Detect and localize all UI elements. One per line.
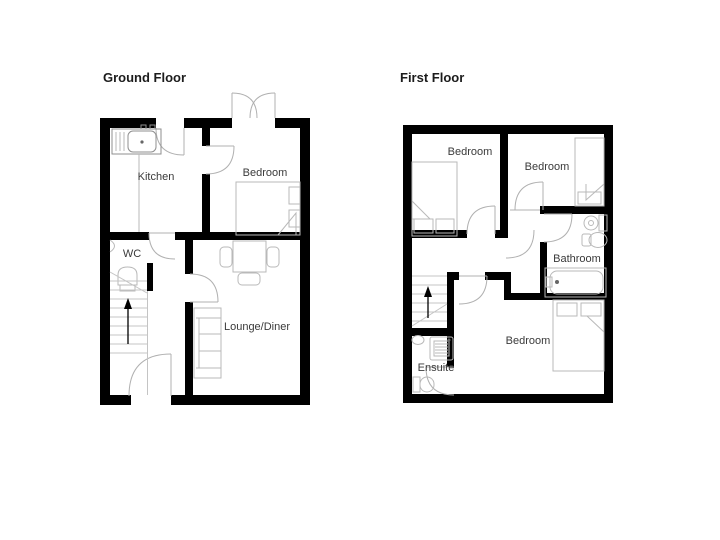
bathtub xyxy=(545,268,606,297)
rear-door xyxy=(156,128,184,155)
stairs-up-arrow xyxy=(124,298,132,344)
ensuite-toilet xyxy=(413,377,434,392)
staircase xyxy=(110,272,148,395)
floorplan-page: Ground Floor xyxy=(0,0,720,540)
bed-rear xyxy=(553,300,604,371)
first-floor-title: First Floor xyxy=(400,70,464,85)
bedroom3-door xyxy=(459,276,487,304)
bathroom-basin xyxy=(582,233,607,248)
lounge-door xyxy=(190,274,218,302)
room-label-ensuite: Ensuite xyxy=(418,362,455,374)
bedroom2-door xyxy=(510,182,543,210)
first-floor-fixtures xyxy=(412,138,607,392)
room-label-bedroom-1: Bedroom xyxy=(448,146,493,158)
ground-floor-fixtures xyxy=(110,125,300,395)
double-bed xyxy=(236,182,300,235)
sofa xyxy=(194,308,221,378)
dining-table xyxy=(220,241,279,285)
landing-door xyxy=(506,230,534,258)
bed-front-right xyxy=(575,138,604,206)
first-floor-plan: First Floor xyxy=(400,70,613,403)
ground-floor-title: Ground Floor xyxy=(103,70,186,85)
staircase-first xyxy=(412,276,447,326)
wc-basin xyxy=(110,240,115,252)
bedroom-door xyxy=(206,146,234,174)
floorplan-canvas: Ground Floor xyxy=(0,0,720,540)
room-label-bedroom-gf: Bedroom xyxy=(243,167,288,179)
stairs-up-arrow-first xyxy=(424,286,432,318)
ground-floor-plan: Ground Floor xyxy=(100,70,310,405)
room-label-bedroom-2: Bedroom xyxy=(525,161,570,173)
bathroom-door xyxy=(544,214,572,242)
front-door xyxy=(129,354,171,396)
wc-door xyxy=(149,233,175,259)
room-label-lounge-diner: Lounge/Diner xyxy=(224,321,290,333)
french-doors xyxy=(232,93,275,118)
wc-toilet xyxy=(118,267,137,291)
room-label-bathroom: Bathroom xyxy=(553,253,601,265)
room-label-kitchen: Kitchen xyxy=(138,171,175,183)
bed-front-left xyxy=(412,162,457,236)
first-floor-labels: Bedroom Bedroom Bathroom Bedroom Ensuite xyxy=(418,146,601,374)
room-label-wc: WC xyxy=(123,248,141,260)
room-label-bedroom-3: Bedroom xyxy=(506,335,551,347)
bedroom1-door xyxy=(467,206,495,234)
bathroom-toilet xyxy=(584,215,607,231)
ensuite-basin xyxy=(412,336,424,345)
